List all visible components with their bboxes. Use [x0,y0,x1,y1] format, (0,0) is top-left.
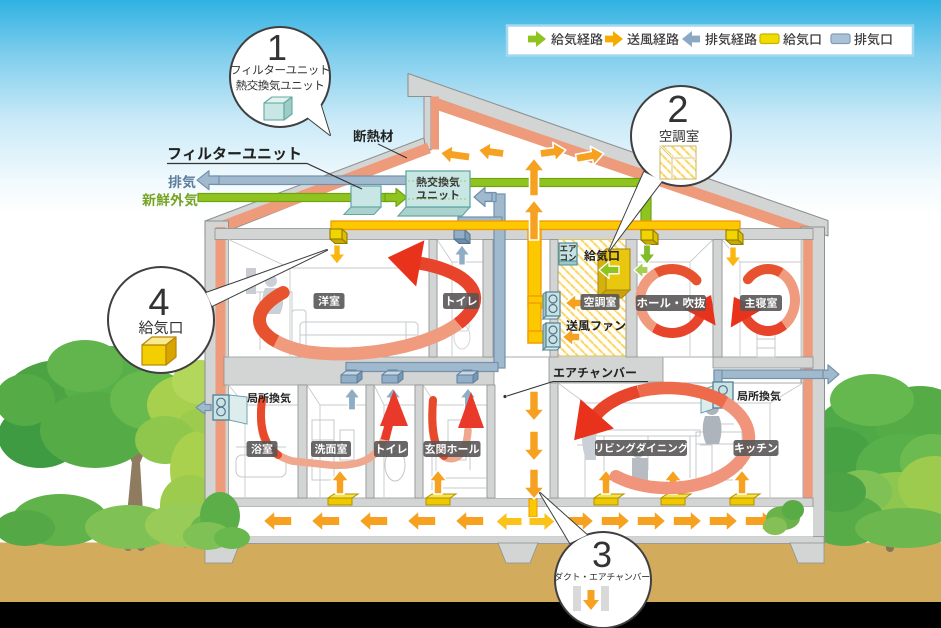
svg-text:3: 3 [592,534,612,575]
svg-text:4: 4 [148,282,169,324]
svg-text:1: 1 [267,27,287,68]
svg-text:2: 2 [667,89,688,131]
